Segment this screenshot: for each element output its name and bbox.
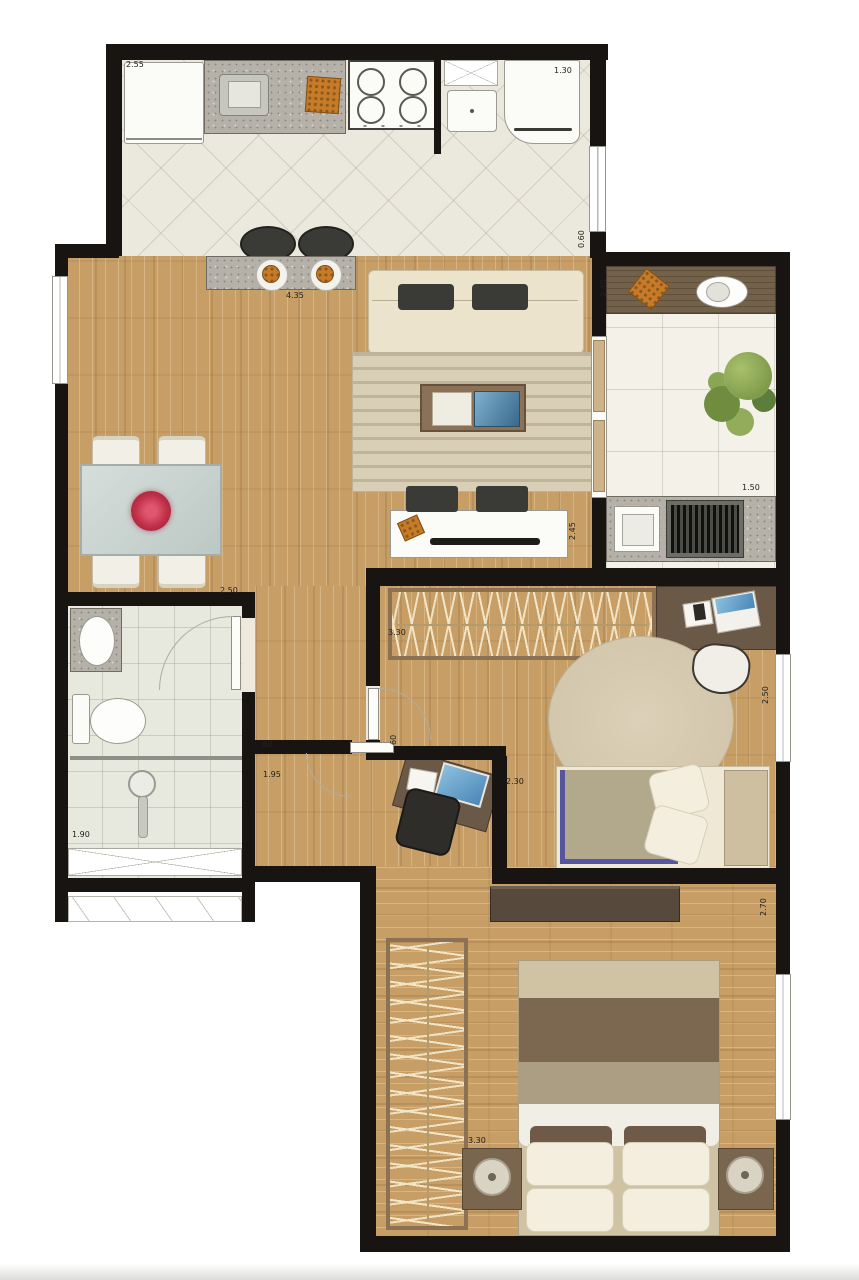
stove-knobs xyxy=(356,124,430,128)
dimension-label: 0.60 xyxy=(577,230,586,248)
dimension-label: 1.90 xyxy=(72,830,90,839)
wall-bedroom2-bottom xyxy=(360,1236,790,1252)
double-bed-stripe-brown xyxy=(519,998,719,1062)
wall-bay-stub-right xyxy=(242,892,255,922)
bbq-sink-basin xyxy=(622,514,654,546)
washing-machine-panel xyxy=(514,128,572,131)
dimension-label: 3.30 xyxy=(388,628,406,637)
wall-bedroom2-left xyxy=(360,866,376,1252)
stove-burner xyxy=(357,96,385,124)
plate-food xyxy=(262,265,280,283)
kitchen-sink-basin xyxy=(228,81,261,108)
shower-hose xyxy=(138,796,148,838)
wall-bay-stub-left xyxy=(55,892,68,922)
dimension-label: 2.70 xyxy=(759,898,768,916)
coffee-table-screen xyxy=(474,391,520,427)
shower-head xyxy=(128,770,156,798)
dimension-label: 4.35 xyxy=(286,291,304,300)
bed-pillow xyxy=(622,1188,710,1232)
wall-balcony-top xyxy=(592,252,790,266)
shower-partition xyxy=(70,756,242,760)
wall-kitchen-service-divider xyxy=(434,58,441,154)
balcony-sink-basin xyxy=(706,282,730,302)
wall-nook-south xyxy=(255,866,376,882)
cutting-board-food xyxy=(305,76,341,114)
wall-right-mid xyxy=(776,762,790,974)
stove-burner xyxy=(399,68,427,96)
dimension-label: 2.30 xyxy=(506,777,524,786)
bedroom2-wardrobe xyxy=(386,938,468,1230)
wall-service-right-upper xyxy=(590,44,606,146)
sofa-cushion xyxy=(472,284,528,310)
bed-headboard xyxy=(724,770,768,866)
refrigerator-door-line xyxy=(126,138,202,140)
laundry-cabinet xyxy=(444,60,498,86)
floor-plan: 2.551.300.602.404.352.452.501.503.302.50… xyxy=(0,0,859,1280)
bed-pillow xyxy=(526,1142,614,1186)
dimension-label: 2.50 xyxy=(220,586,238,595)
wall-bathroom-left xyxy=(55,604,68,892)
media-speaker xyxy=(406,486,458,512)
television xyxy=(430,538,540,545)
wall-right-lower xyxy=(776,1120,790,1252)
wall-bathroom-right-upper xyxy=(242,592,255,618)
service-window xyxy=(589,146,606,232)
bedroom1-window xyxy=(775,654,791,762)
potted-plant xyxy=(724,352,772,400)
coffee-table-tray xyxy=(432,392,472,426)
wall-nook-east xyxy=(492,756,507,882)
wall-right-upper xyxy=(776,252,790,654)
bed-pillow xyxy=(526,1188,614,1232)
dining-chair xyxy=(158,552,206,588)
bedroom2-window xyxy=(775,974,791,1120)
shower-box xyxy=(68,848,242,876)
wall-bedrooms-divider xyxy=(492,868,790,884)
bedroom1-door xyxy=(368,688,379,740)
dimension-label: 60 xyxy=(389,735,398,745)
wall-bathroom-right-lower xyxy=(242,692,255,892)
dimension-label: 2.45 xyxy=(568,522,577,540)
table-lamp xyxy=(473,1158,511,1196)
bathroom-bay-window xyxy=(68,896,242,922)
double-bed-stripe-mid xyxy=(519,1062,719,1104)
dimension-label: 2.40 xyxy=(599,279,608,297)
refrigerator xyxy=(124,62,204,144)
notebook-cover xyxy=(693,603,706,620)
dimension-label: .60 xyxy=(260,740,273,749)
dimension-label: 3.30 xyxy=(468,1136,486,1145)
table-lamp xyxy=(726,1156,764,1194)
bedroom2-dresser xyxy=(490,886,680,922)
dimension-label: 1.50 xyxy=(742,483,760,492)
dimension-label: 2.55 xyxy=(126,60,144,69)
dimension-label: 1.95 xyxy=(263,770,281,779)
bed-pillow xyxy=(622,1142,710,1186)
sliding-door-panel xyxy=(593,340,605,412)
sliding-door-panel xyxy=(593,420,605,492)
wall-bathroom-bottom xyxy=(55,878,255,892)
toilet-bowl xyxy=(90,698,146,744)
wall-bedroom1-top xyxy=(366,568,790,586)
sofa xyxy=(368,270,584,354)
wall-bedroom1-left xyxy=(366,568,380,686)
toilet-tank xyxy=(72,694,90,744)
sofa-cushion xyxy=(398,284,454,310)
suite-door xyxy=(350,742,394,753)
bathroom-basin xyxy=(79,616,115,666)
page-bottom-shadow xyxy=(0,1264,859,1280)
wall-kitchen-left xyxy=(106,44,122,256)
dimension-label: 2.50 xyxy=(761,686,770,704)
media-speaker xyxy=(476,486,528,512)
dimension-label: 1.30 xyxy=(554,66,572,75)
stove-burner xyxy=(357,68,385,96)
bathroom-door-gap xyxy=(242,618,255,692)
plate-food xyxy=(316,265,334,283)
stove-burner xyxy=(399,96,427,124)
barbecue-grill xyxy=(666,500,744,558)
wall-top xyxy=(106,44,608,60)
dining-chair xyxy=(92,552,140,588)
flower-centerpiece xyxy=(131,491,171,531)
living-window xyxy=(52,276,68,384)
laundry-sink-drain xyxy=(470,109,474,113)
